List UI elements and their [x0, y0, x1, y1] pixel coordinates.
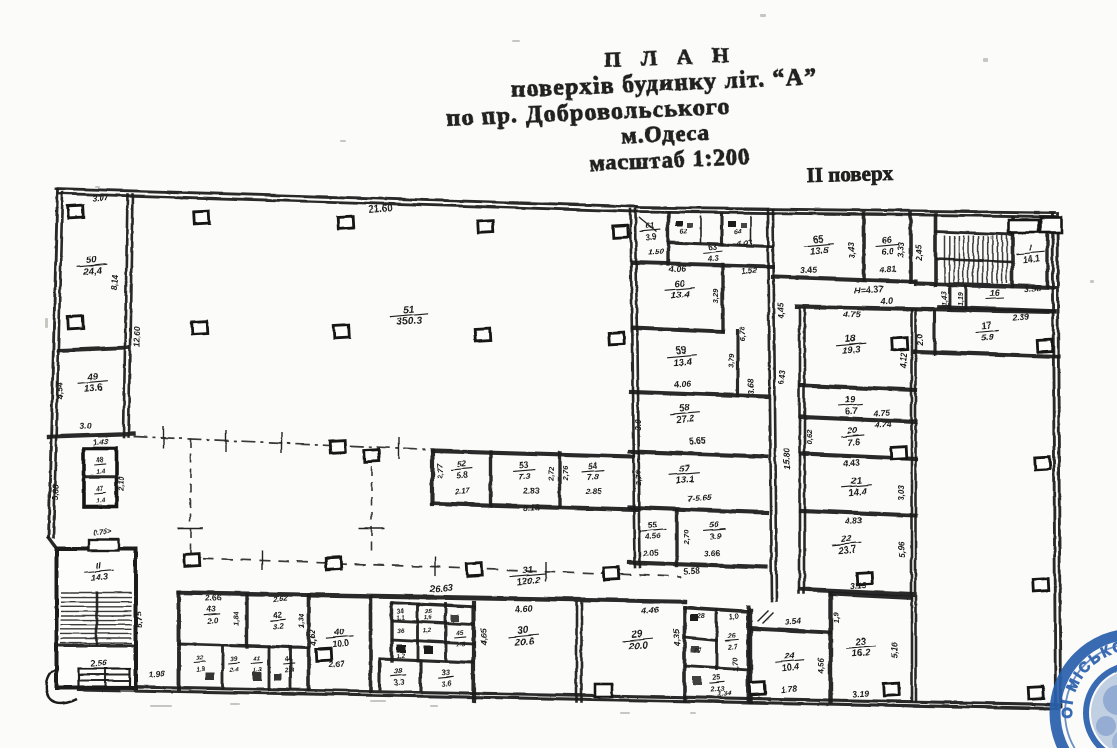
svg-text:2.56: 2.56: [88, 656, 106, 667]
svg-text:1,2: 1,2: [423, 628, 432, 635]
svg-text:2,10: 2,10: [116, 475, 125, 491]
svg-text:44: 44: [283, 655, 292, 663]
svg-text:52: 52: [456, 458, 467, 469]
svg-text:19.3: 19.3: [841, 344, 861, 357]
svg-text:4.43: 4.43: [841, 456, 859, 467]
svg-text:7.6: 7.6: [846, 436, 860, 447]
svg-text:5,88: 5,88: [50, 483, 60, 500]
svg-text:3.96: 3.96: [1023, 282, 1040, 293]
svg-text:м.Одеса: м.Одеса: [620, 119, 710, 148]
svg-text:43: 43: [205, 604, 216, 614]
svg-text:2,72: 2,72: [546, 465, 555, 481]
svg-text:7.3: 7.3: [517, 470, 530, 481]
svg-text:13.5: 13.5: [809, 245, 829, 258]
svg-text:42: 42: [271, 610, 282, 620]
svg-text:2.39: 2.39: [1010, 310, 1028, 321]
svg-text:13.1: 13.1: [675, 474, 694, 487]
svg-text:4.83: 4.83: [843, 514, 861, 525]
svg-text:6.7: 6.7: [844, 405, 858, 416]
svg-text:3.68: 3.68: [746, 378, 755, 394]
svg-text:2.5: 2.5: [454, 640, 465, 648]
svg-text:3.66: 3.66: [704, 548, 721, 558]
svg-text:3.19: 3.19: [851, 687, 868, 698]
svg-text:38: 38: [393, 666, 403, 676]
svg-text:5.9: 5.9: [980, 331, 993, 342]
svg-text:4.03: 4.03: [735, 237, 753, 247]
svg-text:3,79: 3,79: [726, 352, 735, 367]
svg-text:4,62: 4,62: [308, 629, 317, 646]
svg-text:0,62: 0,62: [804, 428, 813, 443]
svg-text:1,43: 1,43: [941, 291, 948, 305]
svg-text:5,16: 5,16: [890, 642, 899, 658]
svg-text:23.7: 23.7: [836, 544, 857, 557]
svg-text:3.9: 3.9: [708, 530, 721, 541]
svg-text:2,76: 2,76: [633, 469, 642, 485]
svg-text:2.3: 2.3: [283, 666, 294, 674]
svg-text:54: 54: [587, 460, 598, 471]
svg-text:3,33: 3,33: [896, 241, 905, 257]
svg-text:2.83: 2.83: [522, 485, 540, 495]
svg-text:4,35: 4,35: [671, 628, 681, 646]
svg-text:32: 32: [195, 654, 203, 662]
svg-text:25: 25: [711, 674, 720, 682]
svg-text:2.7: 2.7: [726, 643, 738, 651]
svg-text:4.75: 4.75: [842, 308, 860, 319]
svg-text:21.60: 21.60: [367, 202, 393, 215]
svg-text:4.0: 4.0: [878, 295, 892, 306]
svg-text:10.4: 10.4: [781, 661, 799, 672]
svg-text:1.78: 1.78: [780, 683, 797, 694]
svg-text:6,75: 6,75: [133, 610, 143, 627]
svg-text:6.0: 6.0: [880, 245, 893, 256]
svg-text:3.2: 3.2: [272, 621, 284, 631]
svg-text:48: 48: [94, 456, 103, 464]
svg-text:16.2: 16.2: [851, 647, 871, 660]
svg-text:1.43: 1.43: [92, 436, 109, 446]
svg-text:3.6: 3.6: [440, 678, 452, 688]
svg-text:1.4: 1.4: [95, 467, 105, 475]
svg-text:13.4: 13.4: [670, 289, 690, 302]
svg-text:Н=4.37: Н=4.37: [853, 283, 884, 295]
svg-text:3.3: 3.3: [393, 677, 405, 687]
svg-text:1.4: 1.4: [95, 496, 105, 504]
svg-text:1.98: 1.98: [147, 667, 164, 678]
svg-text:1,34: 1,34: [296, 612, 305, 627]
svg-text:27.2: 27.2: [674, 413, 695, 426]
svg-text:56: 56: [709, 519, 720, 530]
svg-text:ІІ поверх: ІІ поверх: [806, 161, 894, 187]
svg-text:41: 41: [251, 655, 260, 663]
svg-text:2,70: 2,70: [681, 528, 690, 544]
svg-text:63: 63: [707, 242, 717, 252]
svg-text:1,2: 1,2: [396, 653, 405, 660]
svg-text:17: 17: [980, 320, 992, 331]
svg-text:2,77: 2,77: [435, 463, 444, 479]
svg-text:4,12: 4,12: [899, 352, 908, 369]
svg-text:2.66: 2.66: [204, 592, 222, 602]
svg-text:33: 33: [440, 667, 450, 677]
svg-text:4.60: 4.60: [513, 602, 532, 613]
svg-text:4.3: 4.3: [706, 253, 719, 263]
svg-text:4.06: 4.06: [672, 377, 690, 388]
svg-text:4.81: 4.81: [878, 263, 896, 274]
svg-text:26: 26: [726, 632, 735, 640]
svg-text:1,1: 1,1: [396, 615, 405, 622]
svg-text:24: 24: [782, 650, 794, 661]
svg-text:4.46: 4.46: [640, 604, 660, 615]
svg-text:12,60: 12,60: [131, 325, 141, 347]
svg-text:6,78: 6,78: [737, 325, 746, 340]
svg-text:5.58: 5.58: [682, 564, 699, 575]
svg-text:8,14: 8,14: [109, 273, 119, 290]
svg-text:7.8: 7.8: [586, 471, 599, 482]
svg-text:350.3: 350.3: [396, 314, 422, 327]
svg-text:20.6: 20.6: [513, 636, 535, 649]
svg-text:14.3: 14.3: [90, 571, 108, 582]
svg-text:10.0: 10.0: [331, 637, 349, 648]
svg-text:0.75>: 0.75>: [92, 526, 112, 536]
svg-text:3.54: 3.54: [784, 615, 801, 626]
svg-text:13.6: 13.6: [83, 382, 103, 395]
svg-text:3.07: 3.07: [91, 191, 109, 202]
svg-text:5.8: 5.8: [455, 469, 468, 480]
svg-text:120.2: 120.2: [515, 574, 540, 587]
svg-text:45: 45: [454, 629, 463, 637]
svg-text:1,84: 1,84: [231, 610, 240, 625]
svg-text:1,6: 1,6: [424, 615, 433, 622]
svg-text:5,96: 5,96: [897, 541, 906, 557]
svg-text:2.85: 2.85: [584, 485, 602, 495]
svg-text:2,76: 2,76: [560, 464, 569, 480]
svg-text:2.62: 2.62: [271, 593, 289, 603]
svg-text:1.50: 1.50: [648, 246, 665, 256]
svg-text:3.9: 3.9: [645, 232, 657, 242]
svg-text:20: 20: [845, 425, 857, 436]
svg-text:2.05: 2.05: [641, 547, 659, 557]
svg-text:4,45: 4,45: [776, 302, 785, 319]
svg-text:4.75: 4.75: [871, 406, 889, 417]
svg-text:62: 62: [679, 228, 687, 236]
svg-text:15.80: 15.80: [781, 447, 791, 469]
svg-text:24,4: 24,4: [81, 265, 102, 278]
svg-text:1,0: 1,0: [728, 613, 738, 621]
svg-text:1,9: 1,9: [831, 611, 840, 622]
svg-text:1,70: 1,70: [732, 657, 739, 671]
svg-text:3,43: 3,43: [847, 242, 856, 258]
svg-text:13.4: 13.4: [672, 356, 692, 369]
svg-text:2.17: 2.17: [453, 485, 471, 495]
svg-text:55: 55: [647, 520, 657, 530]
svg-text:4.56: 4.56: [644, 531, 662, 541]
svg-text:53: 53: [518, 459, 529, 470]
svg-text:1.52: 1.52: [741, 265, 758, 275]
svg-text:2.0: 2.0: [915, 333, 924, 346]
svg-text:7-5.65: 7-5.65: [686, 491, 711, 503]
svg-text:4.06: 4.06: [667, 262, 685, 273]
svg-text:4,54: 4,54: [54, 381, 64, 399]
svg-text:20.0: 20.0: [627, 640, 649, 653]
svg-text:8.18: 8.18: [522, 501, 539, 512]
svg-text:4.74: 4.74: [873, 418, 891, 429]
svg-text:1.9: 1.9: [195, 665, 205, 673]
svg-text:4,65: 4,65: [478, 627, 488, 645]
svg-text:40: 40: [333, 626, 345, 637]
svg-text:6.43: 6.43: [777, 369, 786, 385]
svg-text:3,29: 3,29: [711, 288, 720, 303]
svg-text:5.65: 5.65: [688, 434, 705, 445]
svg-text:2.4: 2.4: [228, 666, 239, 674]
svg-text:39: 39: [229, 655, 237, 663]
svg-text:1,19: 1,19: [957, 291, 964, 305]
svg-text:64: 64: [733, 228, 741, 236]
svg-text:3.13: 3.13: [849, 579, 866, 590]
svg-text:14.1: 14.1: [1022, 253, 1040, 264]
svg-text:66: 66: [880, 234, 892, 245]
svg-text:4,56: 4,56: [816, 657, 825, 674]
svg-text:3.45: 3.45: [799, 263, 816, 274]
svg-text:26.63: 26.63: [428, 583, 454, 595]
svg-text:3,03: 3,03: [896, 484, 905, 500]
svg-text:36: 36: [396, 627, 404, 635]
svg-text:3.0: 3.0: [79, 420, 92, 431]
svg-text:2.0: 2.0: [205, 615, 218, 625]
svg-text:3.0: 3.0: [633, 418, 642, 430]
svg-text:1.34: 1.34: [717, 690, 731, 698]
svg-text:2,45: 2,45: [914, 244, 923, 261]
svg-text:14.4: 14.4: [847, 486, 867, 499]
svg-text:16: 16: [988, 287, 1000, 298]
svg-text:19: 19: [844, 394, 855, 405]
svg-text:47: 47: [94, 485, 103, 493]
